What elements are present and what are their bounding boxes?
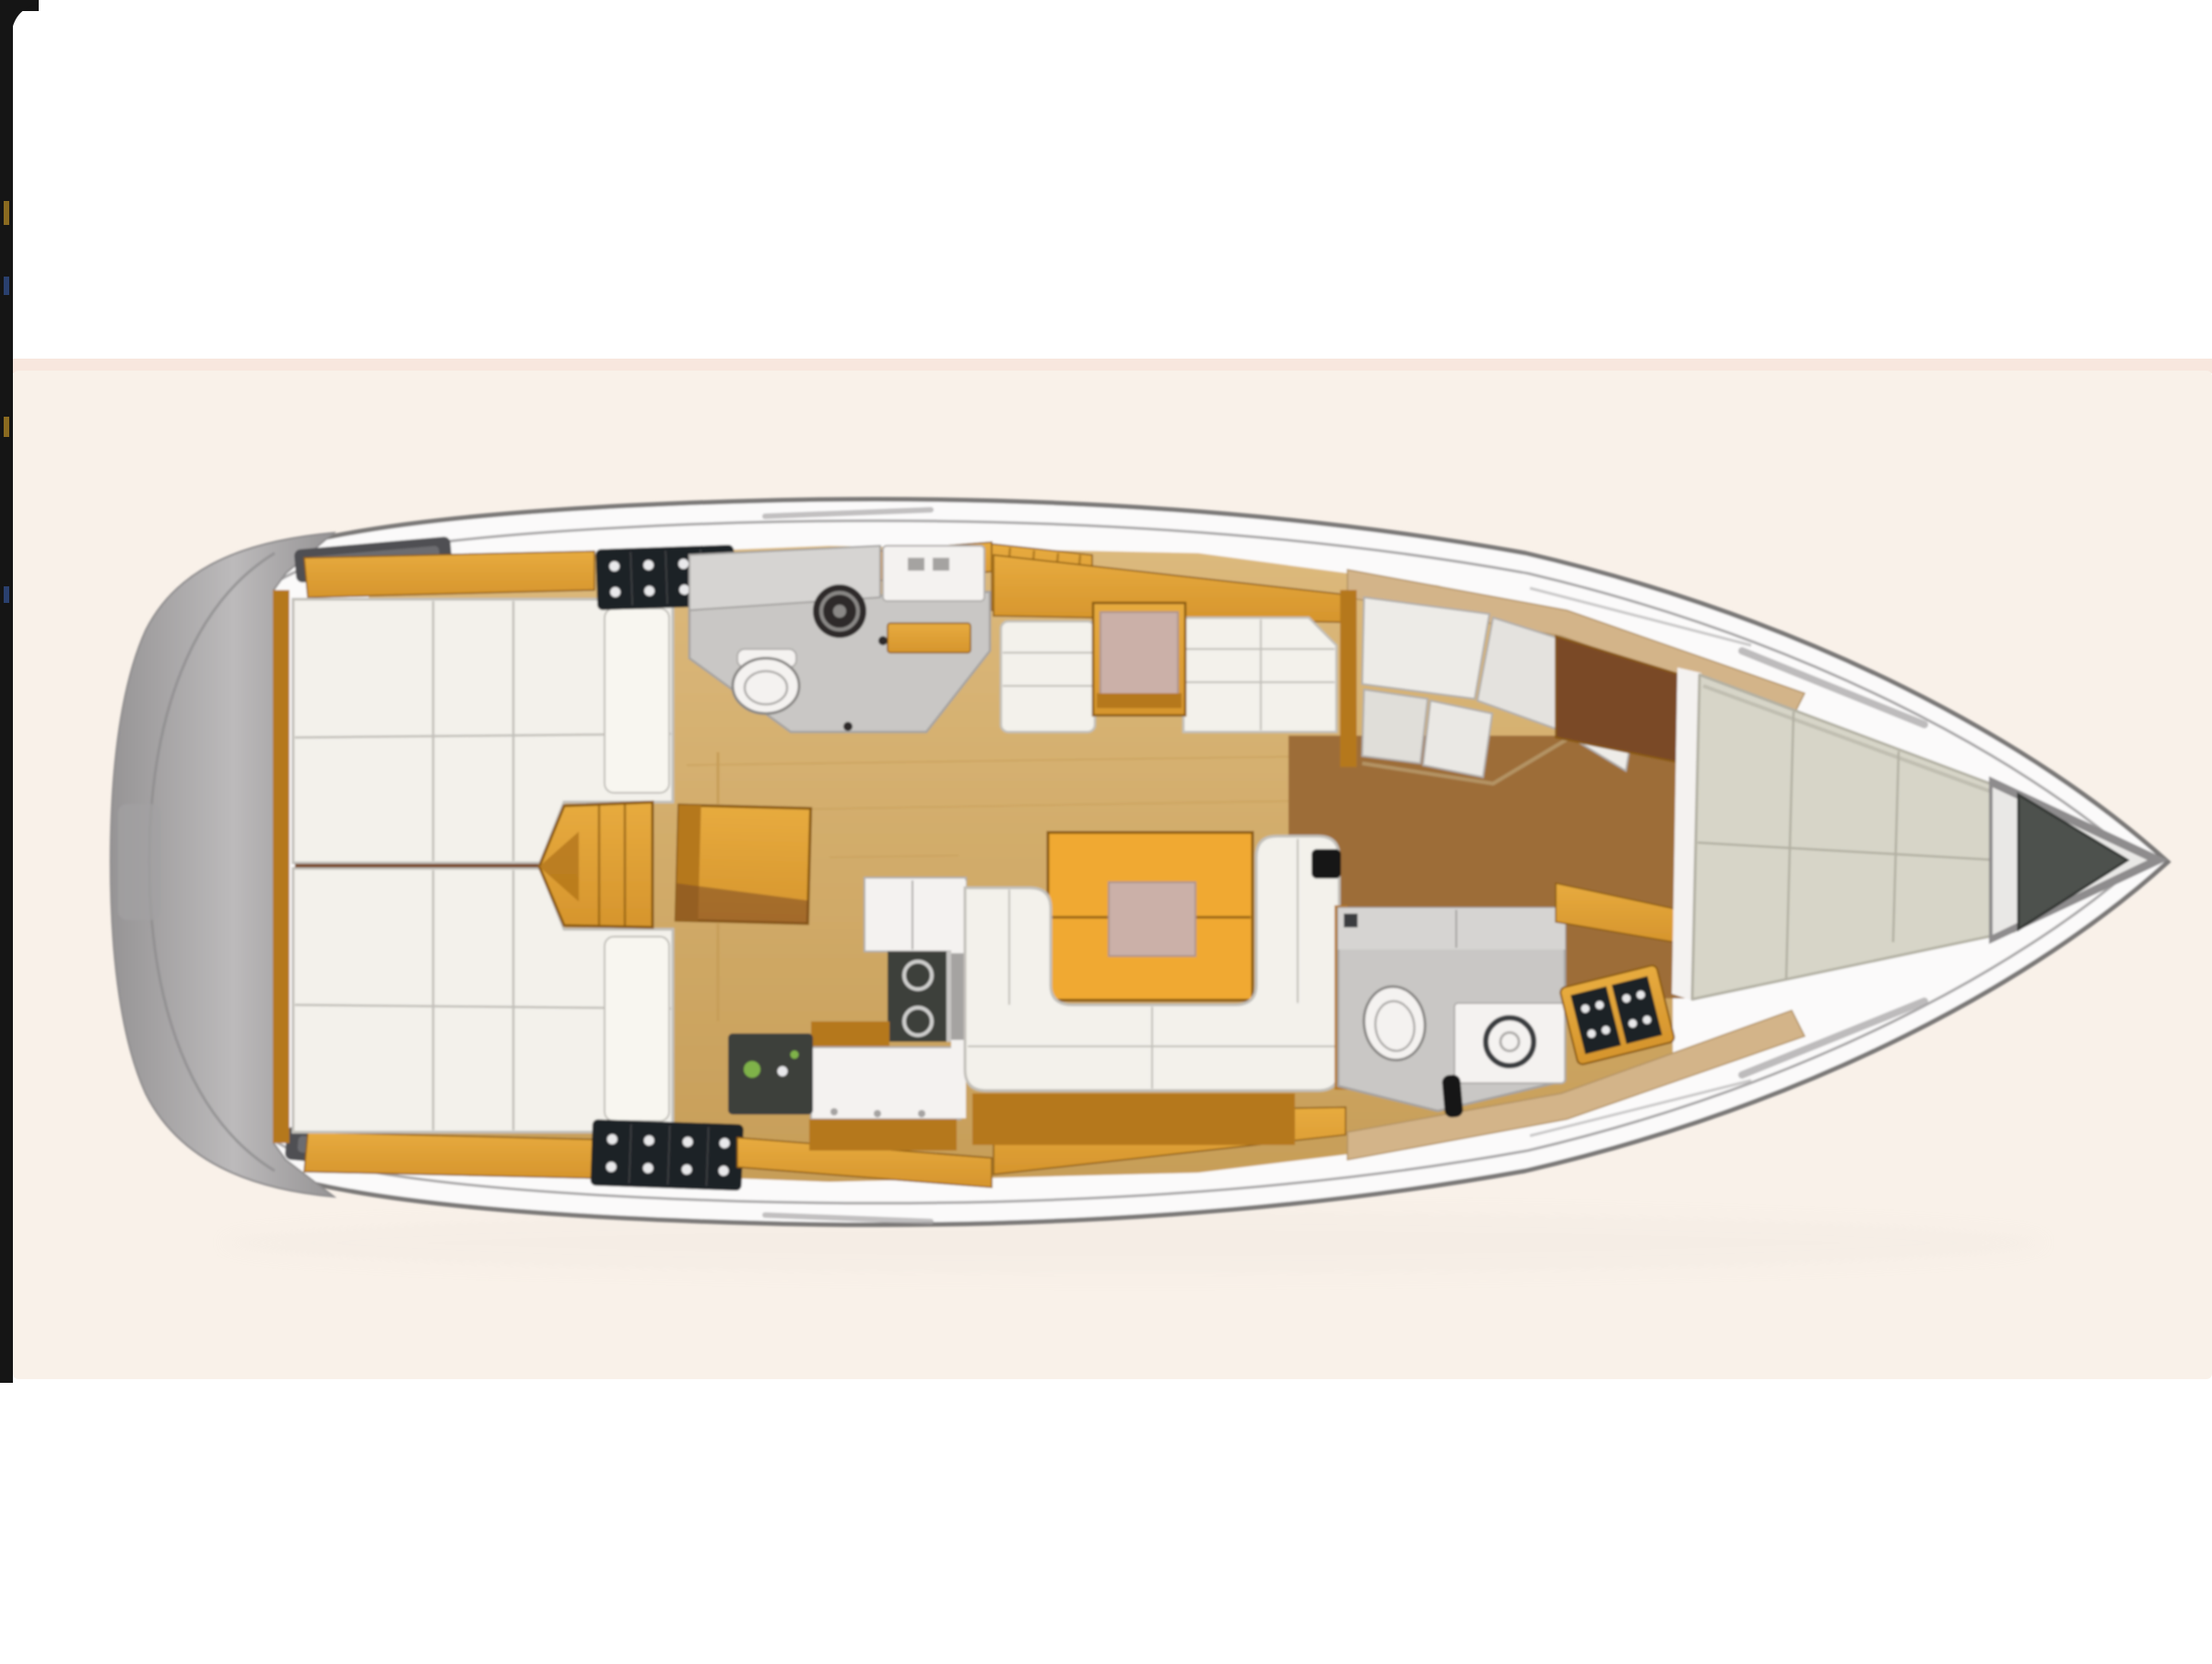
boat-floorplan-figure (0, 0, 2212, 1664)
salon-table-mat (1109, 882, 1195, 956)
head-panel (1362, 597, 1489, 699)
port-table-mat (1100, 612, 1178, 701)
oven-dial-green-small (791, 1051, 799, 1059)
chart-table (676, 805, 810, 924)
starboard-hull-shelf (304, 1132, 594, 1178)
galley-knob (918, 1110, 925, 1117)
screenshot-page (0, 0, 2212, 1664)
head-panel (1362, 690, 1428, 763)
head-panel (1423, 701, 1492, 777)
galley-stove (888, 951, 947, 1042)
head-counter (1338, 908, 1565, 950)
port-hull-shelf (304, 551, 594, 597)
swim-ladder-recess (118, 804, 160, 920)
edge-speck-icon (4, 586, 9, 603)
instrument-box (1312, 849, 1341, 879)
aft-bulkhead-trim (273, 590, 289, 1143)
starboard-berth-pillow (605, 937, 669, 1121)
galley-knob (874, 1110, 881, 1117)
port-settee-cushion-aft (1001, 621, 1095, 732)
oven-dial-white (778, 1067, 788, 1077)
galley-step-trim (811, 1021, 889, 1047)
sink-fitting (908, 558, 924, 571)
port-table-lip (1097, 693, 1182, 708)
galley-plinth (809, 1119, 957, 1151)
port-berth-pillow (605, 608, 669, 793)
hull-drop-shadow (221, 1210, 2046, 1276)
head-knob (843, 722, 853, 731)
settee-plinth (972, 1093, 1295, 1145)
sink-fitting (933, 558, 949, 571)
head-drawer (888, 623, 971, 653)
starboard-aft-locker (590, 1119, 743, 1191)
oven-dial-green (744, 1061, 760, 1078)
head-sink-unit (883, 546, 984, 601)
galley-oven (729, 1034, 812, 1114)
galley-counter-top (865, 878, 966, 951)
sink-drain (833, 605, 846, 618)
edge-speck-icon (4, 277, 9, 295)
head-fitting (1344, 914, 1358, 927)
fridge-front (951, 953, 965, 1040)
edge-speck-icon (4, 417, 9, 437)
edge-speck-icon (4, 201, 9, 225)
galley-knob (830, 1108, 838, 1115)
forward-bulkhead-post (1340, 590, 1357, 767)
head-knob (878, 636, 888, 645)
locker-frame (590, 1119, 743, 1191)
faucet (1441, 1074, 1464, 1118)
